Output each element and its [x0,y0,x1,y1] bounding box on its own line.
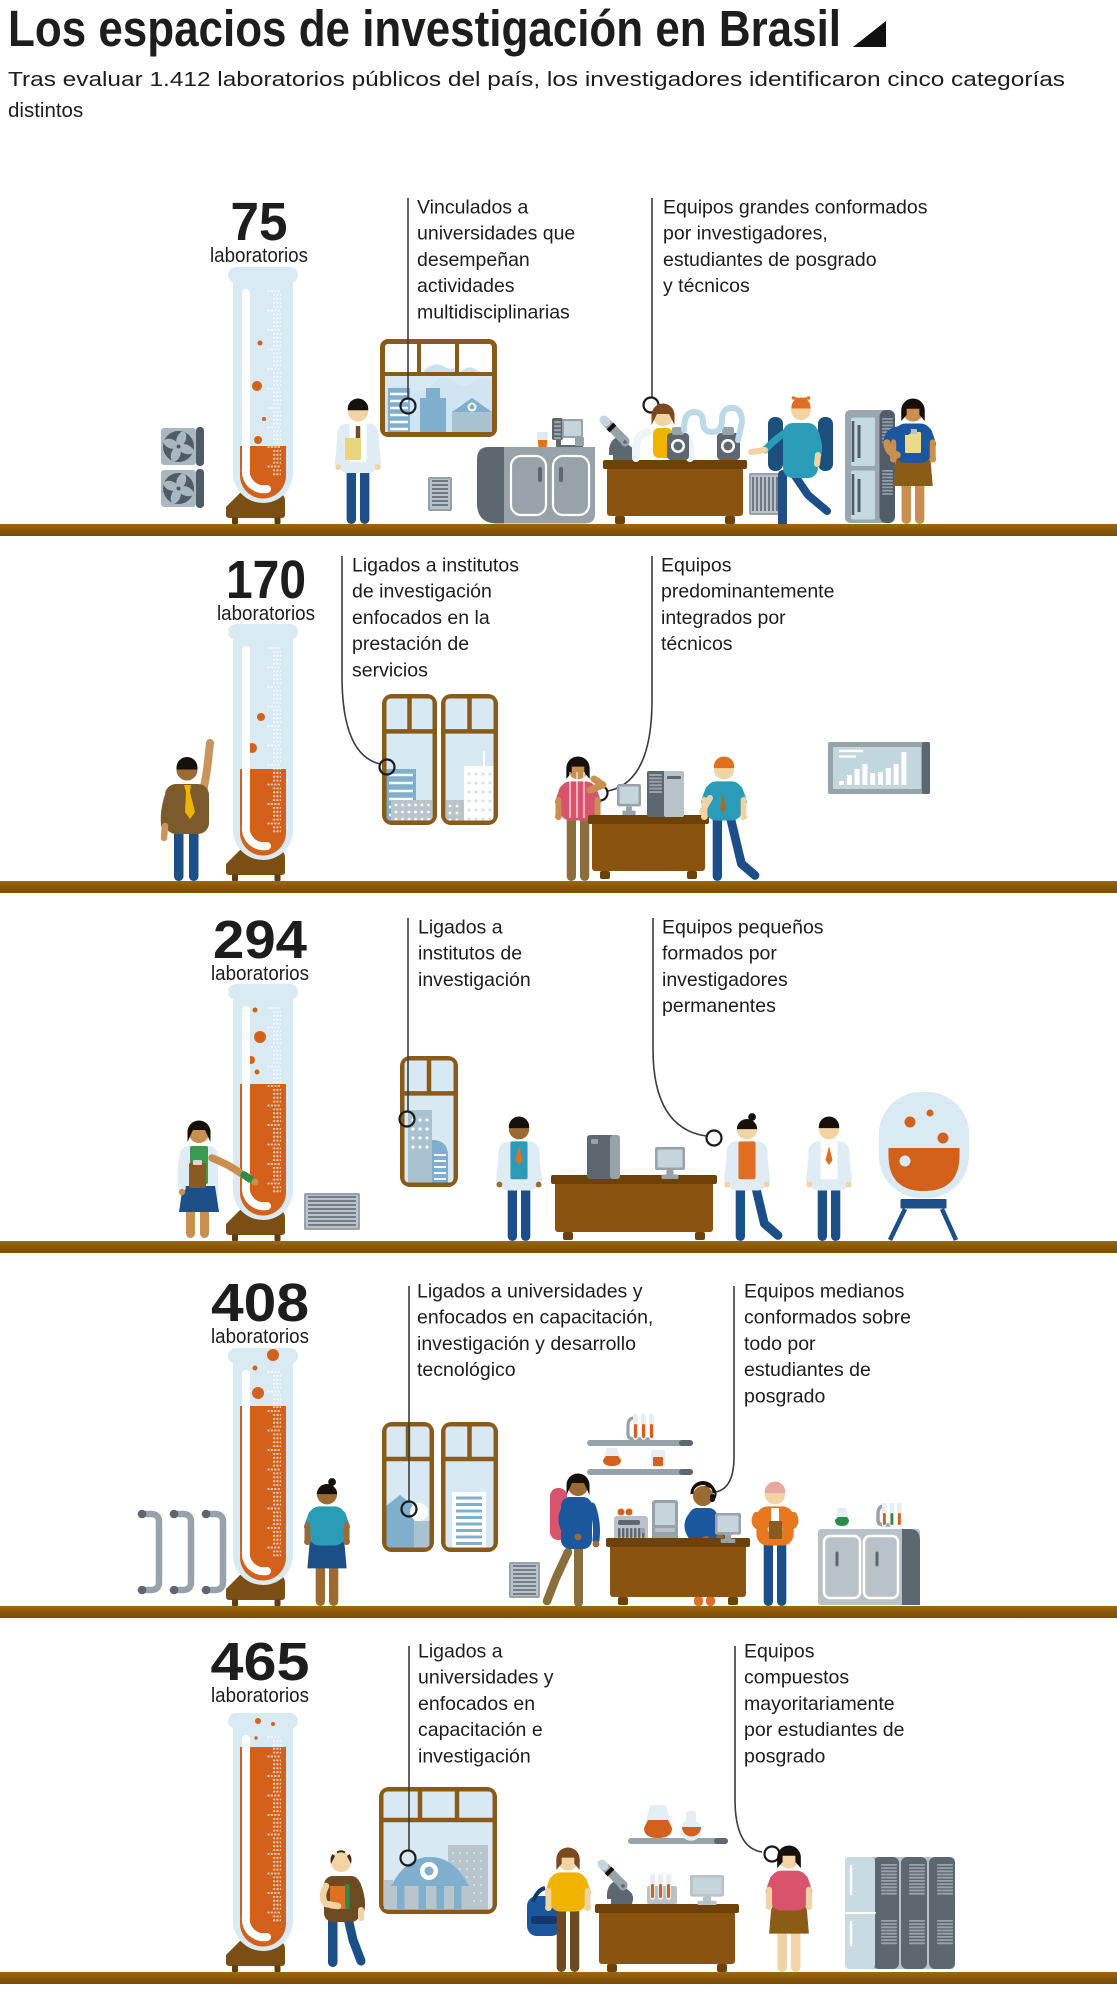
svg-text:mayoritariamente: mayoritariamente [744,1693,895,1715]
svg-text:Ligados a universidades y: Ligados a universidades y [417,1281,643,1303]
svg-text:universidades que: universidades que [417,223,575,245]
svg-text:por investigadores,: por investigadores, [663,223,828,245]
svg-text:enfocados en la: enfocados en la [352,607,490,629]
svg-text:predominantemente: predominantemente [661,581,834,603]
svg-text:laboratorios: laboratorios [217,603,315,625]
svg-text:conformados sobre: conformados sobre [744,1307,911,1329]
svg-text:prestación de: prestación de [352,633,469,655]
svg-text:465: 465 [211,1632,310,1692]
svg-text:laboratorios: laboratorios [211,1685,309,1707]
svg-text:desempeñan: desempeñan [417,249,530,271]
svg-text:permanentes: permanentes [662,995,776,1017]
svg-text:408: 408 [211,1273,309,1333]
svg-text:todo por: todo por [744,1333,816,1355]
svg-text:laboratorios: laboratorios [210,245,308,267]
svg-text:Los espacios de investigación: Los espacios de investigación en Brasil [8,0,841,57]
svg-text:universidades y: universidades y [418,1667,554,1689]
svg-text:Ligados a: Ligados a [418,1641,503,1663]
svg-text:Equipos: Equipos [744,1641,815,1663]
svg-text:Ligados a: Ligados a [418,917,503,939]
svg-text:Equipos grandes conformados: Equipos grandes conformados [663,197,928,219]
svg-text:75: 75 [231,192,288,252]
svg-text:Tras evaluar 1.412 laboratorio: Tras evaluar 1.412 laboratorios públicos… [8,68,1065,91]
svg-text:posgrado: posgrado [744,1745,825,1767]
svg-text:enfocados en capacitación,: enfocados en capacitación, [417,1307,653,1329]
svg-text:estudiantes de posgrado: estudiantes de posgrado [663,249,877,271]
svg-text:Equipos: Equipos [661,555,732,577]
svg-text:laboratorios: laboratorios [211,963,309,985]
svg-text:y técnicos: y técnicos [663,275,750,297]
svg-text:investigadores: investigadores [662,969,788,991]
svg-text:capacitación e: capacitación e [418,1719,543,1741]
svg-text:170: 170 [226,550,306,610]
svg-text:investigación: investigación [418,969,531,991]
svg-text:de investigación: de investigación [352,581,492,603]
svg-text:Equipos pequeños: Equipos pequeños [662,917,824,939]
svg-text:Equipos medianos: Equipos medianos [744,1281,905,1303]
svg-text:multidisciplinarias: multidisciplinarias [417,301,570,323]
svg-text:Ligados a institutos: Ligados a institutos [352,555,519,577]
svg-text:institutos de: institutos de [418,943,522,965]
svg-text:investigación: investigación [418,1745,531,1767]
svg-text:estudiantes de: estudiantes de [744,1359,871,1381]
svg-text:técnicos: técnicos [661,633,733,655]
svg-text:formados por: formados por [662,943,777,965]
svg-text:integrados por: integrados por [661,607,786,629]
svg-text:distintos: distintos [8,99,83,122]
svg-text:294: 294 [213,910,307,970]
svg-text:Vinculados a: Vinculados a [417,197,528,219]
svg-text:investigación y desarrollo: investigación y desarrollo [417,1333,636,1355]
svg-text:actividades: actividades [417,275,515,297]
svg-text:posgrado: posgrado [744,1385,825,1407]
svg-text:tecnológico: tecnológico [417,1359,516,1381]
svg-text:laboratorios: laboratorios [211,1326,309,1348]
svg-text:compuestos: compuestos [744,1667,849,1689]
svg-text:servicios: servicios [352,659,428,681]
svg-text:por estudiantes de: por estudiantes de [744,1719,904,1741]
svg-text:enfocados en: enfocados en [418,1693,535,1715]
